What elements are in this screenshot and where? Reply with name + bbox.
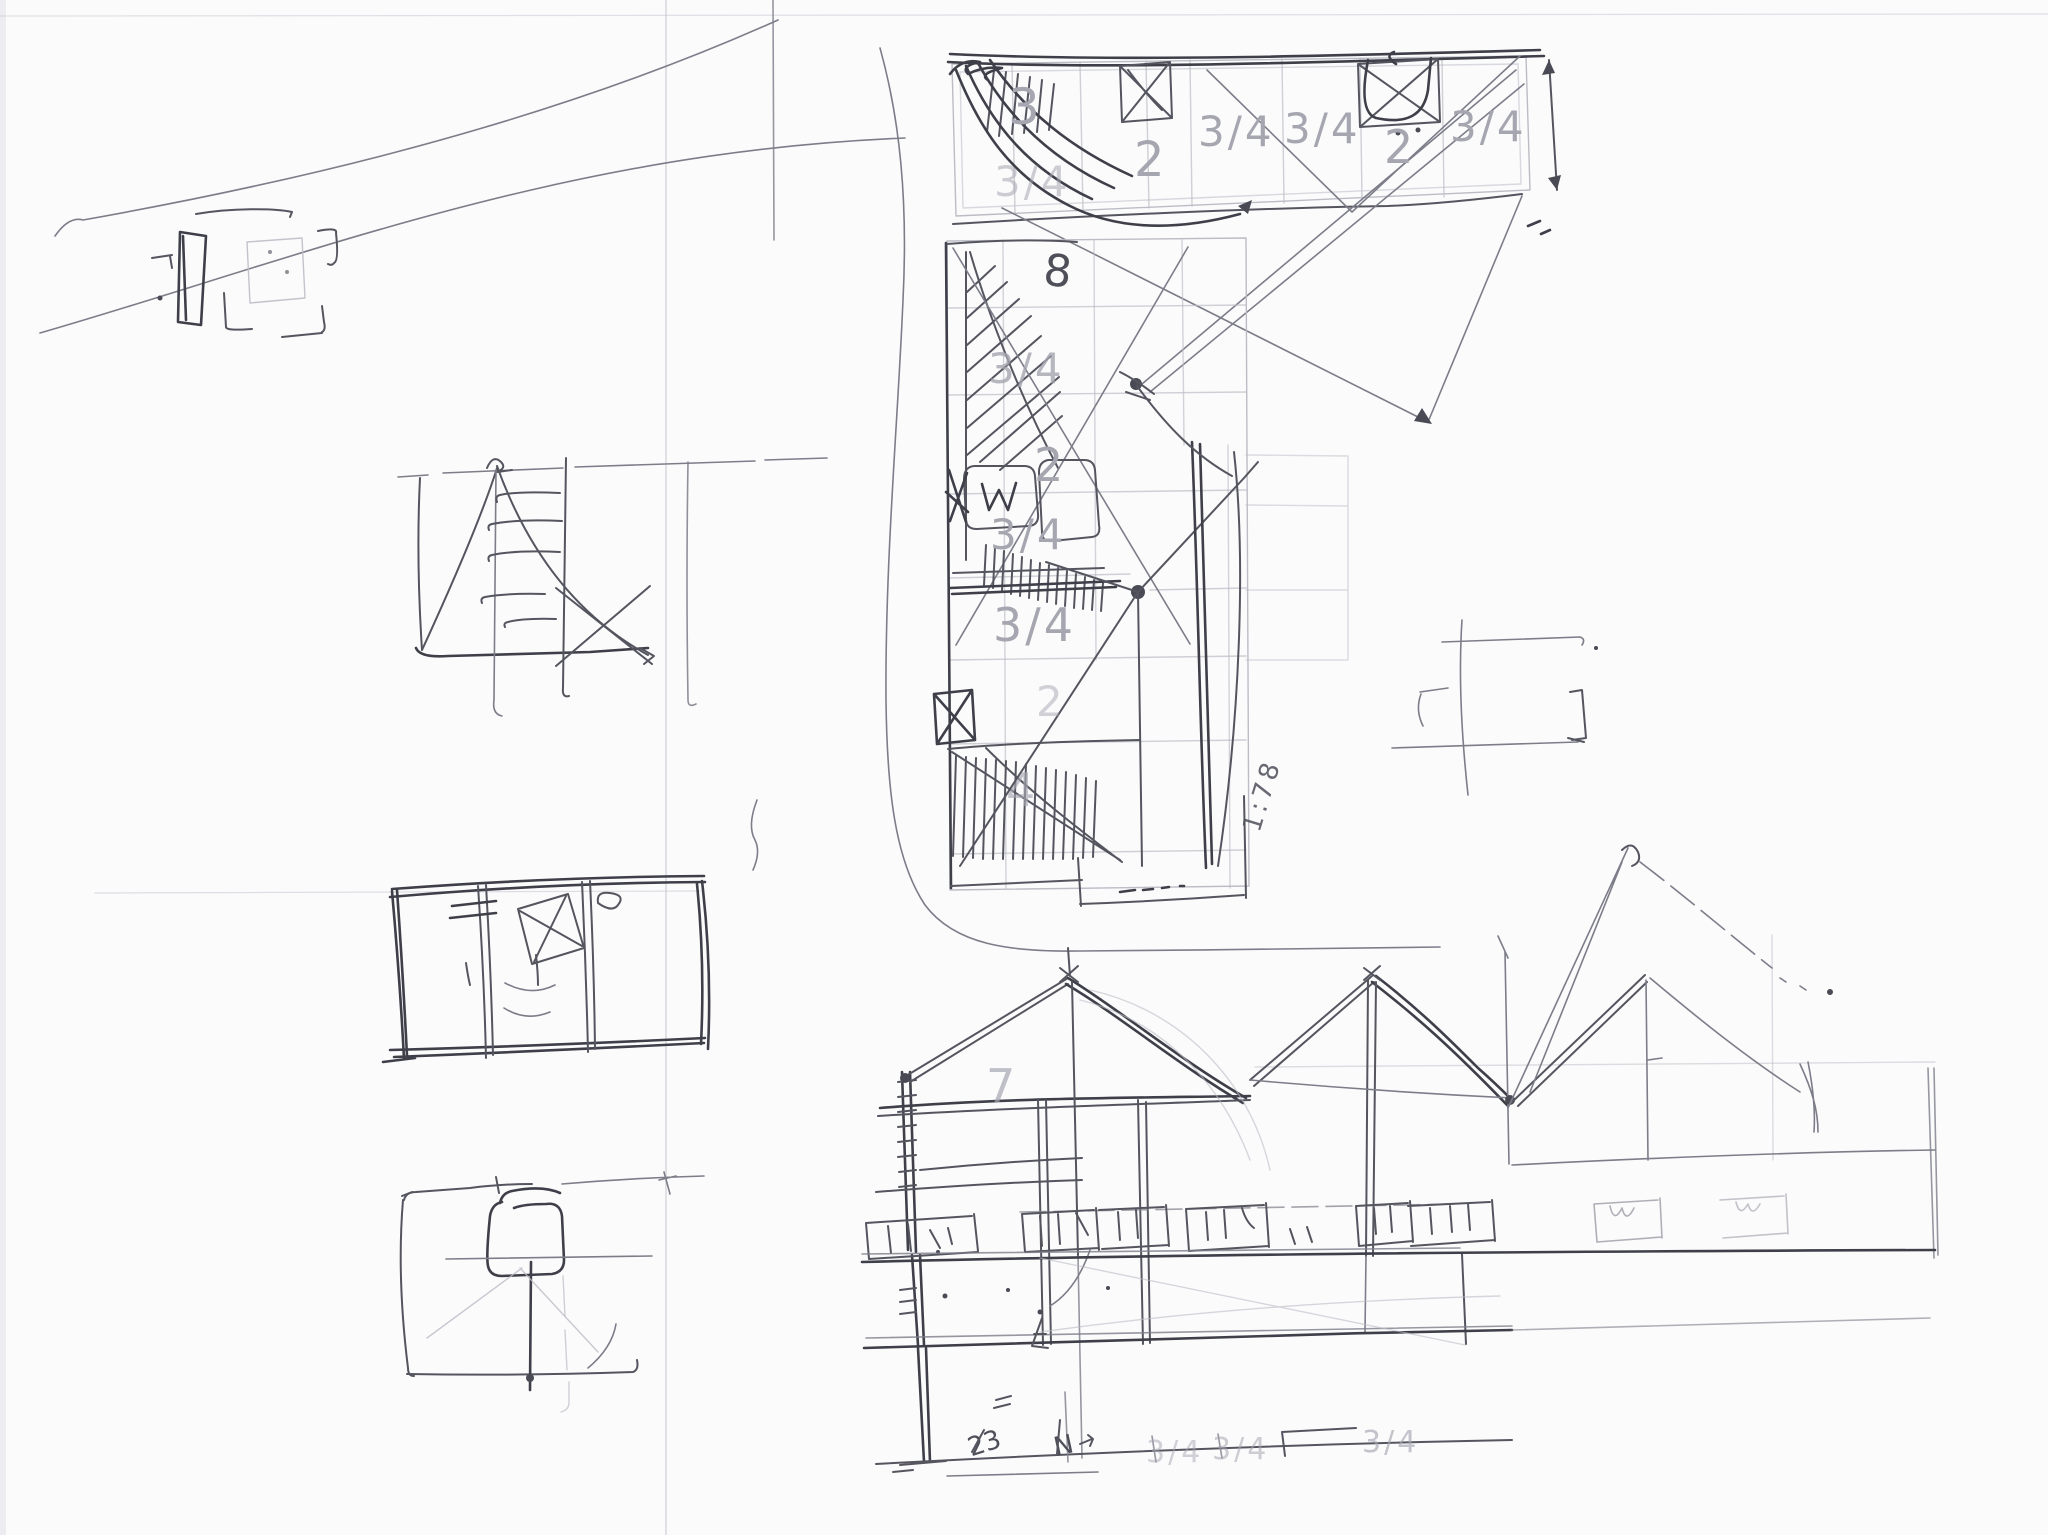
thumbnail-square-stem xyxy=(401,1172,704,1412)
room-label-1: 2 xyxy=(1034,438,1066,492)
bay-label-3: 3/4 xyxy=(1198,107,1275,156)
mid-floor-plan-sketch: 3/4 2 3/4 3/4 2 4 xyxy=(934,238,1348,906)
bay-label-4: 3/4 xyxy=(1284,104,1361,153)
baseline-label-0: 3/4 xyxy=(1146,1435,1203,1470)
baseline-label-1: 3/4 xyxy=(1212,1432,1269,1467)
right-plan-fragment xyxy=(1392,620,1598,795)
bay-label-0: 3 xyxy=(1008,78,1043,136)
room-label-2: 3/4 xyxy=(990,510,1067,559)
bay-label-5: 2 xyxy=(1384,120,1416,174)
bay-label-6: 3/4 xyxy=(1450,102,1527,151)
bay-label-1: 3/4 xyxy=(994,157,1071,206)
thumbnail-triangle-diagram xyxy=(398,458,827,716)
thumbnail-plan-fragment xyxy=(152,209,337,337)
baseline-label-2: 3/4 xyxy=(1362,1425,1419,1460)
sketch-sheet: 3 3/4 2 3/4 3/4 2 3/4 xyxy=(0,0,2048,1535)
dim-note: 8 xyxy=(1041,245,1074,299)
sketch-canvas: 3 3/4 2 3/4 3/4 2 3/4 xyxy=(0,0,2048,1535)
level-label-7: 7 xyxy=(986,1059,1018,1113)
room-label-3: 3/4 xyxy=(993,598,1076,652)
baseline-handnote-1: N xyxy=(1051,1429,1076,1462)
room-label-0: 3/4 xyxy=(988,344,1065,393)
elevation-sketch: 7 3/4 3/4 3/4 xyxy=(862,845,1938,1476)
room-label-4: 2 xyxy=(1036,677,1066,726)
room-label-5: 4 xyxy=(1006,763,1038,817)
thumbnail-three-bay-block xyxy=(383,876,709,1062)
bay-label-2: 2 xyxy=(1134,132,1168,188)
